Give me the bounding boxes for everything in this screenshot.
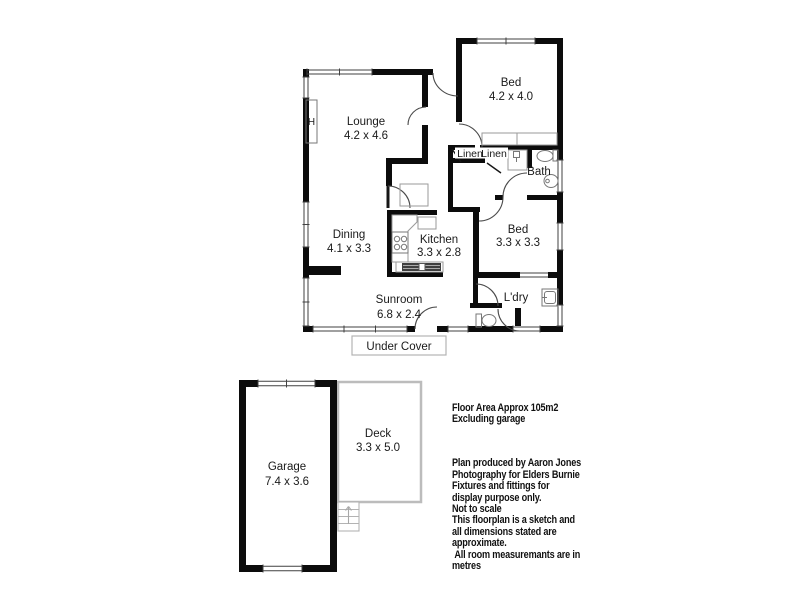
- sunroom-label: Sunroom: [376, 294, 423, 306]
- garage-dims: 7.4 x 3.6: [265, 476, 309, 488]
- stove-burner: [394, 244, 399, 249]
- window: [557, 223, 564, 250]
- bed1-dims: 4.2 x 4.0: [489, 91, 533, 103]
- floor-area-note: Floor Area Approx 105m2 Excluding garage: [452, 403, 598, 426]
- bed2-label: Bed: [508, 224, 528, 236]
- basin-tap: [546, 179, 550, 183]
- lounge-dims: 4.2 x 4.6: [344, 130, 388, 142]
- under-cover-label: Under Cover: [366, 341, 431, 353]
- wc-door-arc: [476, 284, 498, 306]
- window: [303, 77, 310, 98]
- window: [448, 326, 468, 333]
- garage-deck-plan: Garage 7.4 x 3.6 Deck 3.3 x 5.0: [239, 380, 421, 573]
- wall: [548, 272, 563, 278]
- stove-burner: [401, 236, 406, 241]
- wall: [239, 565, 263, 572]
- wall: [315, 380, 337, 387]
- floorplan-page: Lounge 4.2 x 4.6 Bed 4.2 x 4.0 Bath Line…: [0, 0, 800, 600]
- wall: [448, 163, 453, 208]
- dining-label: Dining: [333, 229, 366, 241]
- wall: [473, 272, 520, 278]
- bed2-dims: 3.3 x 3.3: [496, 237, 540, 249]
- bed2-door-arc: [479, 197, 503, 221]
- bed1-door-arc: [459, 124, 482, 147]
- wall: [387, 210, 392, 277]
- window: [263, 565, 302, 573]
- heater-label: H: [308, 117, 315, 128]
- wall: [456, 75, 462, 122]
- disclaimer-note: Plan produced by Aaron Jones Photography…: [452, 458, 598, 572]
- window: [303, 202, 310, 247]
- window: [477, 38, 535, 45]
- stairs: [338, 502, 359, 531]
- wall: [422, 69, 428, 107]
- main-floorplan: Lounge 4.2 x 4.6 Bed 4.2 x 4.0 Bath Line…: [303, 38, 564, 356]
- wall: [495, 195, 503, 200]
- stove-burner: [394, 236, 399, 241]
- wall: [386, 158, 428, 164]
- lounge-door-arc: [408, 107, 426, 125]
- stove-burner: [401, 244, 406, 249]
- wall: [422, 125, 428, 163]
- wc-toilet: [482, 315, 496, 327]
- wall: [239, 380, 246, 572]
- wall: [303, 326, 313, 332]
- front-door-arc: [433, 73, 458, 96]
- floorplan-drawing: Lounge 4.2 x 4.6 Bed 4.2 x 4.0 Bath Line…: [0, 0, 800, 600]
- kitchen-label: Kitchen: [420, 234, 458, 246]
- laundry-label: L'dry: [504, 292, 529, 304]
- notes-block: Floor Area Approx 105m2 Excluding garage…: [452, 380, 598, 584]
- wall: [302, 565, 337, 572]
- dining-dims: 4.1 x 3.3: [327, 243, 371, 255]
- deck-dims: 3.3 x 5.0: [356, 442, 400, 454]
- wall: [527, 195, 563, 200]
- kitchen-dims: 3.3 x 2.8: [417, 247, 461, 259]
- wall: [407, 326, 415, 332]
- wall: [387, 210, 437, 215]
- deck-label: Deck: [365, 428, 391, 440]
- wall: [386, 158, 392, 186]
- hall-cupboard: [400, 184, 428, 206]
- linen2-door-leaf: [487, 163, 501, 173]
- wall: [437, 326, 448, 332]
- linen2-label: Linen: [481, 148, 507, 160]
- bath-label: Bath: [527, 166, 551, 178]
- window: [303, 278, 310, 326]
- window: [307, 69, 372, 76]
- wall: [468, 326, 513, 332]
- wc-toilet-tank: [476, 314, 482, 327]
- garage-label: Garage: [268, 461, 306, 473]
- walls: [303, 38, 563, 332]
- bath-vanity: [508, 150, 527, 170]
- linen1-label: Linen: [457, 148, 483, 160]
- wall: [527, 145, 532, 168]
- window: [557, 160, 564, 192]
- wall: [473, 277, 478, 303]
- wall: [540, 326, 563, 332]
- wall: [515, 308, 521, 326]
- window: [520, 273, 548, 277]
- windows: [303, 38, 564, 333]
- bath-door-arc: [503, 173, 527, 197]
- window: [513, 326, 540, 333]
- wardrobe: [482, 133, 557, 145]
- wall: [387, 272, 443, 277]
- bath-toilet: [537, 151, 553, 162]
- wall: [473, 207, 479, 277]
- bed1-label: Bed: [501, 77, 521, 89]
- wall: [456, 38, 477, 44]
- wall: [330, 380, 337, 572]
- window: [557, 305, 564, 326]
- wall: [303, 266, 341, 275]
- wall: [557, 38, 563, 160]
- wall: [239, 380, 258, 387]
- dining-door-arc: [388, 186, 410, 208]
- kitchen-bench: [392, 215, 417, 262]
- wall: [470, 303, 502, 308]
- vanity-tap: [514, 152, 520, 158]
- lounge-label: Lounge: [347, 116, 385, 128]
- sunroom-dims: 6.8 x 2.4: [377, 309, 422, 321]
- window: [313, 326, 407, 333]
- sink-tap: [419, 264, 425, 271]
- window: [258, 380, 315, 388]
- fridge-space: [418, 217, 436, 229]
- stove: [392, 232, 408, 253]
